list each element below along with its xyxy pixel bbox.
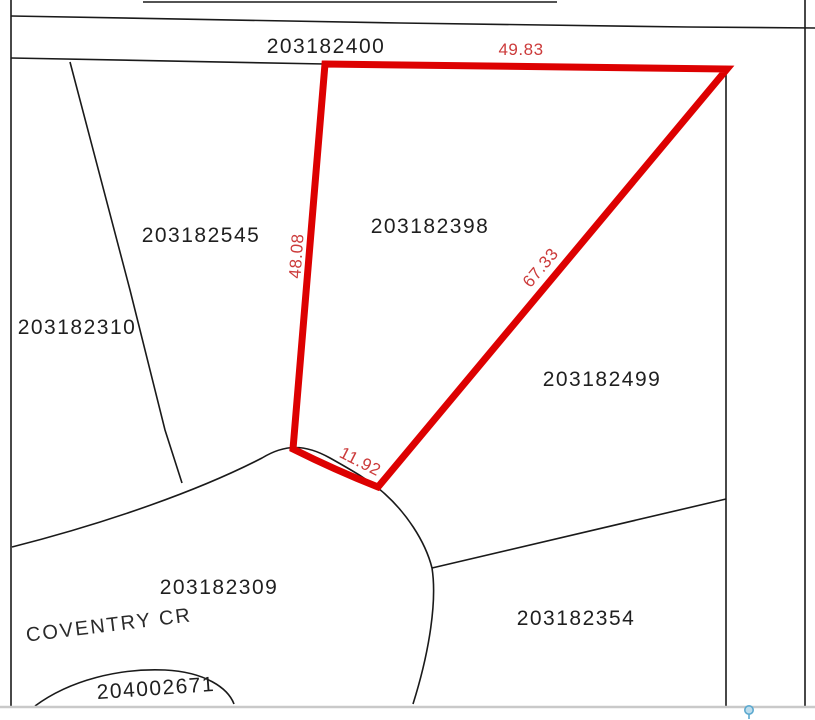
highlighted-parcel-outline[interactable] bbox=[293, 64, 727, 487]
parcel-label-203182354: 203182354 bbox=[517, 607, 636, 631]
boundary-top-main bbox=[11, 16, 815, 28]
parcel-label-203182400: 203182400 bbox=[267, 35, 386, 59]
parcel-label-203182310: 203182310 bbox=[18, 316, 137, 340]
map-pin-icon bbox=[745, 706, 753, 719]
boundary-499-354 bbox=[432, 499, 726, 568]
map-viewport: 203182400 203182545 203182310 203182398 … bbox=[0, 0, 815, 720]
parcel-label-203182499: 203182499 bbox=[543, 368, 662, 392]
dimension-label-top: 49.83 bbox=[498, 40, 543, 60]
parcel-label-203182398: 203182398 bbox=[371, 215, 490, 239]
parcel-label-203182309: 203182309 bbox=[160, 576, 279, 600]
dimension-label-west: 48.08 bbox=[285, 233, 308, 279]
parcel-label-203182545: 203182545 bbox=[142, 224, 261, 248]
boundary-545-310 bbox=[70, 62, 182, 483]
